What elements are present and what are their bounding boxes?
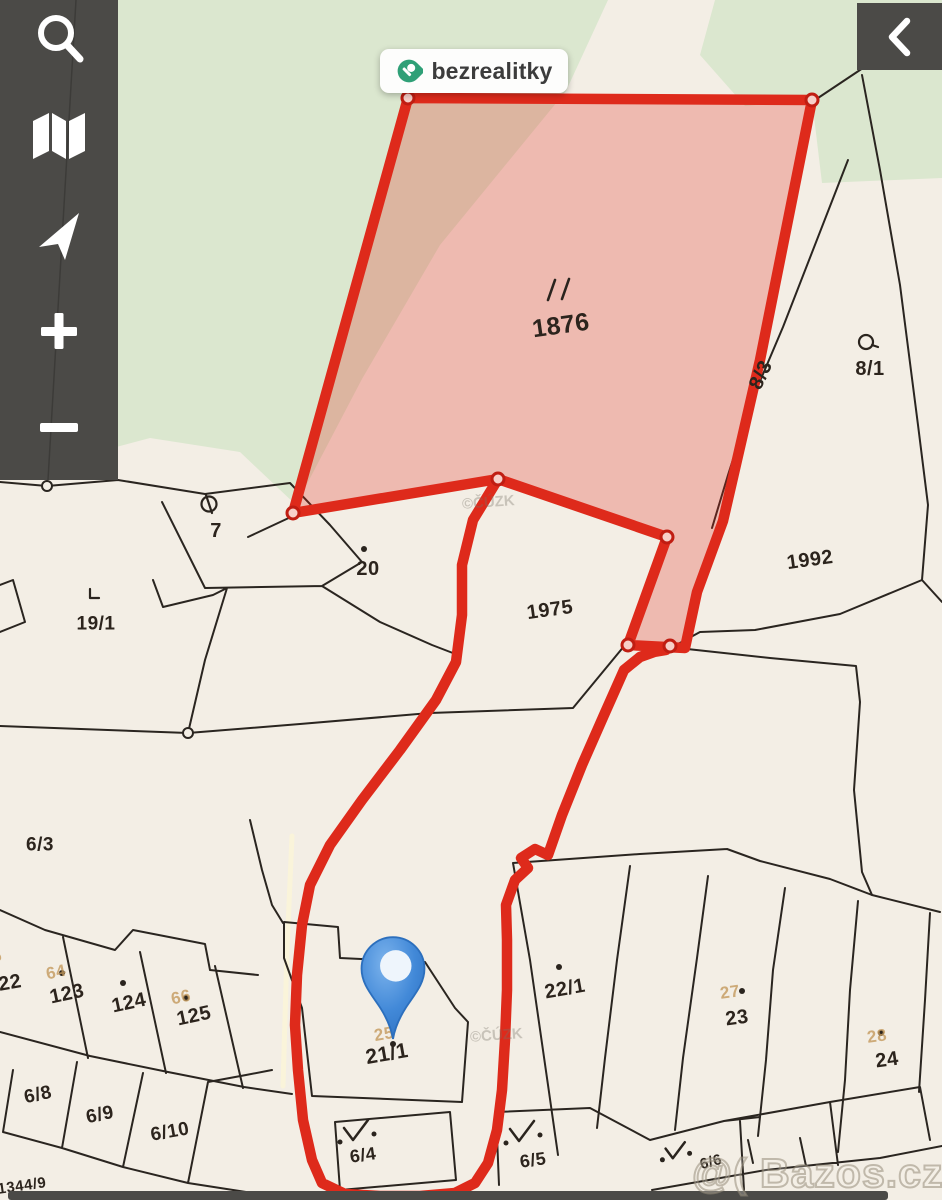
bezrealitky-logo-icon (395, 57, 423, 85)
dot-symbol (878, 1030, 884, 1036)
map-toolbar (0, 0, 118, 480)
navigation-arrow-icon (31, 205, 87, 261)
corner-symbol (90, 589, 99, 598)
locate-button[interactable] (0, 198, 118, 268)
dot-symbol (183, 995, 189, 1001)
dot-symbol (556, 964, 562, 970)
bottom-frame-bar (8, 1191, 888, 1200)
search-button[interactable] (0, 6, 118, 76)
chevron-left-icon (883, 13, 917, 61)
dot-symbol (361, 546, 367, 552)
cadastral-map-screen: 18768/38/11992197520719/16/3221231241256… (0, 0, 942, 1200)
minus-icon (35, 403, 83, 451)
map-canvas[interactable] (0, 0, 942, 1200)
ring-tail-symbol (859, 335, 878, 349)
dot-symbol (739, 988, 745, 994)
zoom-out-button[interactable] (0, 392, 118, 462)
check-symbol (660, 1142, 692, 1162)
map-icon (31, 109, 87, 161)
brand-label: bezrealitky (431, 58, 552, 85)
search-icon (30, 11, 88, 71)
check-symbol (504, 1121, 543, 1146)
location-pin-icon (356, 928, 430, 1050)
zoom-in-button[interactable] (0, 296, 118, 366)
check-symbol (338, 1120, 377, 1145)
bezrealitky-badge[interactable]: bezrealitky (380, 49, 568, 93)
ring-slash-symbol (202, 495, 217, 513)
collapse-panel-button[interactable] (857, 3, 942, 70)
dot-symbol (59, 970, 65, 976)
map-layers-button[interactable] (0, 100, 118, 170)
plus-icon (35, 307, 83, 355)
map-pin[interactable] (356, 928, 430, 1050)
dot-symbol (120, 980, 126, 986)
